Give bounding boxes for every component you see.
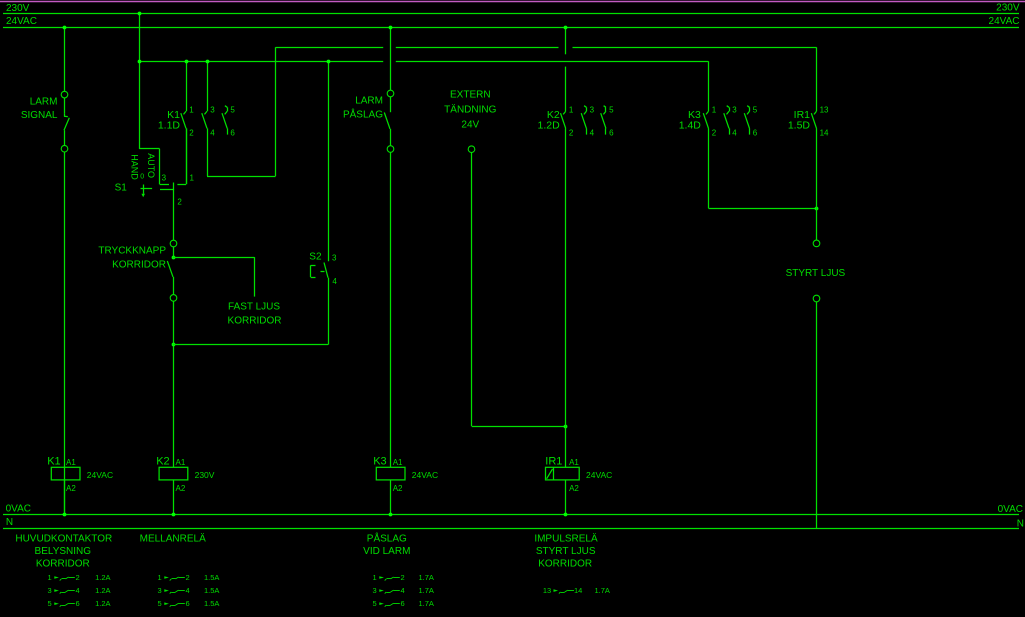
svg-text:1: 1	[189, 105, 194, 114]
svg-text:A2: A2	[66, 484, 76, 493]
svg-text:HUVUDKONTAKTOR: HUVUDKONTAKTOR	[15, 534, 112, 545]
svg-text:KORRIDOR: KORRIDOR	[112, 259, 166, 270]
svg-text:4: 4	[590, 128, 595, 137]
svg-text:1.2A: 1.2A	[95, 586, 110, 595]
svg-text:1: 1	[158, 573, 162, 582]
svg-text:2: 2	[712, 128, 717, 137]
svg-text:1.4D: 1.4D	[679, 119, 702, 131]
svg-text:4: 4	[401, 586, 405, 595]
svg-text:6: 6	[609, 128, 614, 137]
svg-text:IMPULSRELÄ: IMPULSRELÄ	[534, 533, 598, 545]
svg-text:1.5A: 1.5A	[204, 586, 219, 595]
svg-text:24VAC: 24VAC	[989, 16, 1020, 27]
svg-text:2: 2	[186, 573, 190, 582]
svg-text:1.7A: 1.7A	[419, 599, 434, 608]
svg-text:A2: A2	[176, 484, 186, 493]
svg-text:TÄNDNING: TÄNDNING	[444, 104, 496, 116]
svg-text:A2: A2	[569, 484, 579, 493]
svg-text:230V: 230V	[195, 470, 215, 480]
svg-text:TRYCKKNAPP: TRYCKKNAPP	[98, 246, 166, 257]
svg-text:3: 3	[373, 586, 377, 595]
svg-text:1.5A: 1.5A	[204, 573, 219, 582]
svg-text:5: 5	[373, 599, 377, 608]
svg-text:2: 2	[76, 573, 80, 582]
svg-text:SIGNAL: SIGNAL	[21, 110, 58, 121]
svg-text:13: 13	[543, 586, 551, 595]
svg-text:3: 3	[158, 586, 162, 595]
svg-text:1.7A: 1.7A	[419, 573, 434, 582]
svg-text:PÅSLAG: PÅSLAG	[367, 532, 407, 545]
svg-text:4: 4	[332, 277, 337, 286]
svg-text:KORRIDOR: KORRIDOR	[36, 558, 90, 569]
svg-text:13: 13	[820, 105, 829, 114]
svg-text:A1: A1	[66, 458, 76, 467]
svg-text:6: 6	[401, 599, 405, 608]
svg-text:KORRIDOR: KORRIDOR	[228, 315, 282, 326]
svg-text:3: 3	[210, 105, 215, 114]
svg-text:5: 5	[609, 105, 614, 114]
svg-text:2: 2	[401, 573, 405, 582]
svg-text:4: 4	[76, 586, 80, 595]
svg-text:A2: A2	[393, 484, 403, 493]
svg-text:6: 6	[753, 128, 758, 137]
svg-text:A1: A1	[176, 458, 186, 467]
svg-text:4: 4	[210, 128, 215, 137]
svg-text:6: 6	[76, 599, 80, 608]
svg-text:24VAC: 24VAC	[6, 16, 37, 27]
svg-text:3: 3	[332, 253, 337, 262]
svg-text:14: 14	[820, 128, 829, 137]
svg-text:K2: K2	[156, 456, 169, 468]
svg-text:HAND: HAND	[130, 154, 140, 180]
svg-text:1.2A: 1.2A	[95, 573, 110, 582]
svg-text:24VAC: 24VAC	[87, 470, 113, 480]
svg-text:1: 1	[48, 573, 52, 582]
svg-text:3: 3	[732, 105, 737, 114]
svg-text:4: 4	[186, 586, 190, 595]
svg-text:230V: 230V	[996, 2, 1020, 13]
svg-text:2: 2	[177, 198, 182, 207]
svg-text:K3: K3	[373, 456, 386, 468]
svg-text:24VAC: 24VAC	[586, 470, 612, 480]
svg-text:1.7A: 1.7A	[419, 586, 434, 595]
svg-text:3: 3	[590, 105, 595, 114]
svg-text:S2: S2	[309, 252, 322, 263]
svg-text:1.1D: 1.1D	[158, 119, 181, 131]
svg-text:2: 2	[189, 128, 194, 137]
svg-text:1: 1	[373, 573, 377, 582]
svg-text:24VAC: 24VAC	[412, 470, 438, 480]
svg-text:EXTERN: EXTERN	[450, 90, 491, 101]
svg-text:AUTO: AUTO	[146, 153, 156, 178]
svg-text:A1: A1	[393, 458, 403, 467]
svg-text:STYRT LJUS: STYRT LJUS	[786, 268, 846, 279]
svg-text:K1: K1	[47, 456, 60, 468]
svg-text:0: 0	[140, 173, 144, 180]
svg-text:1.5A: 1.5A	[204, 599, 219, 608]
svg-text:LARM: LARM	[30, 96, 58, 107]
svg-text:KORRIDOR: KORRIDOR	[538, 558, 592, 569]
svg-text:N: N	[6, 517, 13, 528]
svg-text:0VAC: 0VAC	[998, 504, 1023, 515]
svg-text:24V: 24V	[461, 119, 479, 130]
svg-text:1.2D: 1.2D	[538, 119, 561, 131]
svg-text:S1: S1	[115, 183, 128, 194]
svg-text:5: 5	[753, 105, 758, 114]
svg-text:1: 1	[712, 105, 717, 114]
svg-text:6: 6	[186, 599, 190, 608]
svg-text:5: 5	[158, 599, 162, 608]
svg-text:1.5D: 1.5D	[788, 119, 811, 131]
svg-text:2: 2	[569, 128, 574, 137]
svg-text:1.7A: 1.7A	[595, 586, 610, 595]
svg-text:N: N	[1017, 519, 1024, 530]
svg-text:5: 5	[48, 599, 52, 608]
svg-text:1.2A: 1.2A	[95, 599, 110, 608]
svg-text:STYRT LJUS: STYRT LJUS	[536, 546, 596, 557]
svg-text:230V: 230V	[6, 3, 30, 14]
svg-text:BELYSNING: BELYSNING	[35, 546, 92, 557]
svg-text:PÅSLAG: PÅSLAG	[343, 108, 383, 121]
svg-text:4: 4	[732, 128, 737, 137]
svg-text:5: 5	[230, 105, 235, 114]
svg-text:1: 1	[190, 174, 195, 183]
svg-text:3: 3	[48, 586, 52, 595]
svg-text:MELLANRELÄ: MELLANRELÄ	[140, 533, 206, 545]
svg-text:LARM: LARM	[355, 95, 383, 106]
svg-text:VID LARM: VID LARM	[363, 546, 410, 557]
svg-text:1: 1	[569, 105, 574, 114]
svg-text:3: 3	[162, 174, 167, 183]
svg-text:FAST LJUS: FAST LJUS	[228, 302, 280, 313]
svg-text:14: 14	[574, 586, 582, 595]
svg-text:0VAC: 0VAC	[6, 504, 31, 515]
svg-text:A1: A1	[569, 458, 579, 467]
svg-text:IR1: IR1	[545, 456, 562, 468]
svg-text:6: 6	[230, 128, 235, 137]
